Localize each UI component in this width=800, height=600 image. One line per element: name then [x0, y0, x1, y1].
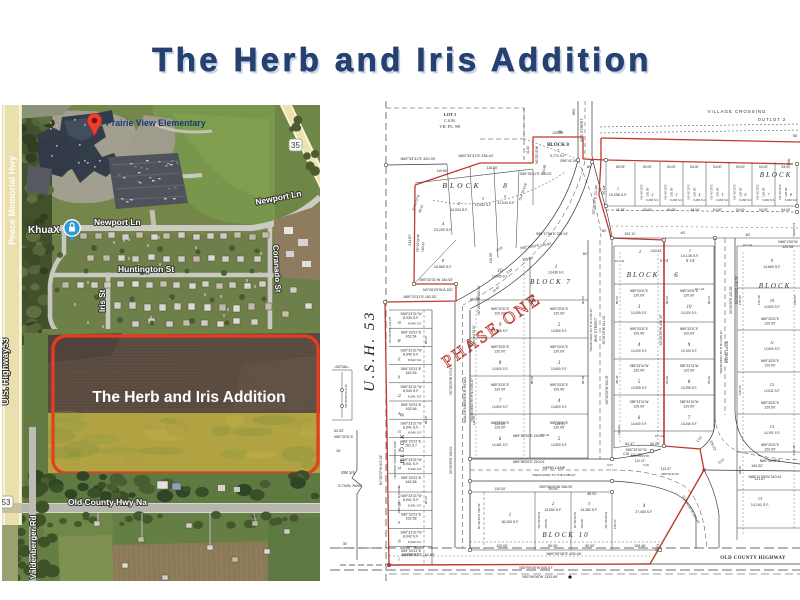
svg-text:35: 35: [291, 141, 300, 150]
svg-text:BLOCK: BLOCK: [399, 433, 406, 464]
svg-text:8,940 S.F.: 8,940 S.F.: [408, 322, 422, 326]
svg-text:10: 10: [687, 305, 693, 310]
svg-text:12,600 S.F.: 12,600 S.F.: [764, 347, 780, 351]
svg-text:8: 8: [398, 521, 400, 525]
svg-text:162.58: 162.58: [406, 516, 417, 520]
svg-text:14: 14: [397, 467, 401, 471]
svg-text:6: 6: [674, 271, 678, 279]
svg-text:11: 11: [770, 340, 774, 345]
svg-text:U.S.H. 53: U.S.H. 53: [362, 310, 378, 392]
svg-text:121.67': 121.67': [754, 477, 766, 481]
svg-text:10,945 S.F.: 10,945 S.F.: [492, 275, 508, 279]
svg-text:N89°33'31"E: N89°33'31"E: [491, 345, 509, 349]
svg-text:10' U.E.: 10' U.E.: [743, 243, 753, 247]
svg-text:150.58: 150.58: [580, 519, 584, 529]
svg-text:-58.92'-: -58.92'-: [586, 492, 597, 496]
svg-text:8,942 S.F.: 8,942 S.F.: [403, 535, 419, 539]
svg-text:10: 10: [397, 321, 401, 325]
svg-text:2: 2: [652, 193, 654, 197]
svg-text:85.49': 85.49': [581, 375, 585, 384]
svg-text:N89°33'31"E: N89°33'31"E: [761, 443, 779, 447]
svg-text:50.00': 50.00': [650, 442, 660, 446]
svg-text:N89°33'31"E: N89°33'31"E: [630, 289, 648, 293]
svg-text:89.09': 89.09': [616, 165, 625, 169]
svg-text:162.56: 162.56: [406, 407, 417, 411]
svg-text:42.32': 42.32': [616, 208, 625, 212]
svg-text:6,460 S.F.: 6,460 S.F.: [716, 198, 729, 202]
svg-text:4: 4: [699, 193, 701, 197]
svg-text:194.32': 194.32': [751, 464, 763, 468]
svg-text:N1°42'10"E: N1°42'10"E: [710, 184, 714, 199]
svg-text:90.00': 90.00': [548, 544, 558, 548]
svg-text:S 1/4: S 1/4: [660, 258, 668, 263]
svg-text:C15: C15: [623, 452, 629, 456]
svg-text:54.00': 54.00': [759, 165, 768, 169]
svg-text:16,569 S.F.: 16,569 S.F.: [434, 265, 452, 269]
svg-text:C17: C17: [607, 463, 613, 467]
svg-text:50°26'29"E 150.51': 50°26'29"E 150.51': [477, 502, 481, 529]
svg-text:N88°1'50"W: N88°1'50"W: [778, 240, 798, 244]
svg-text:S0°26'29"E 131.08: S0°26'29"E 131.08: [388, 317, 392, 343]
svg-text:14,669 S.F.: 14,669 S.F.: [763, 265, 781, 269]
svg-text:-DETAIL-: -DETAIL-: [334, 365, 350, 369]
svg-text:13,004 S.F.: 13,004 S.F.: [450, 208, 468, 212]
svg-text:S89°33'31"W: S89°33'31"W: [680, 364, 699, 368]
svg-text:90.00': 90.00': [424, 495, 428, 504]
svg-text:13,043 S.F.: 13,043 S.F.: [474, 203, 492, 207]
svg-text:104.50': 104.50': [489, 252, 493, 263]
svg-text:14,191 S.F.: 14,191 S.F.: [751, 503, 769, 507]
svg-text:S88°17'50"E 222.19': S88°17'50"E 222.19': [536, 232, 568, 236]
svg-text:10,256 S.F.: 10,256 S.F.: [609, 193, 627, 197]
svg-text:54.00': 54.00': [667, 208, 676, 212]
svg-text:60': 60': [746, 233, 751, 237]
svg-text:VILLAGE CROSSING: VILLAGE CROSSING: [708, 109, 767, 114]
svg-text:N89°58'00"E 240.01': N89°58'00"E 240.01': [513, 434, 546, 438]
svg-text:S89°33'31"W 154.53': S89°33'31"W 154.53': [419, 278, 453, 282]
svg-text:S89°33'31"W: S89°33'31"W: [661, 472, 679, 476]
svg-text:"DEDICAT: "DEDICAT: [792, 223, 796, 238]
svg-text:-54.00': -54.00': [690, 208, 700, 212]
svg-text:N89°33'31"E 238.44': N89°33'31"E 238.44': [459, 154, 494, 158]
svg-text:12: 12: [397, 394, 401, 398]
svg-text:120.00': 120.00': [494, 388, 506, 392]
svg-text:50.00': 50.00': [643, 165, 652, 169]
svg-text:120.00': 120.00': [716, 187, 720, 197]
svg-text:120.00': 120.00': [784, 187, 788, 197]
svg-text:N1°42'10"E: N1°42'10"E: [756, 184, 760, 199]
svg-text:5: 5: [722, 193, 724, 197]
svg-text:162.58: 162.58: [406, 480, 417, 484]
svg-text:23,200 S.F.: 23,200 S.F.: [434, 228, 452, 232]
svg-text:133.40': 133.40': [617, 425, 621, 435]
svg-text:N1°42'10"E: N1°42'10"E: [640, 184, 644, 199]
svg-text:150.55: 150.55: [544, 519, 548, 529]
svg-text:105.46': 105.46': [634, 544, 646, 548]
svg-text:60': 60': [602, 229, 607, 233]
svg-text:60': 60': [681, 231, 686, 235]
svg-text:10,800 S.F.: 10,800 S.F.: [492, 405, 508, 409]
svg-text:85.00': 85.00': [424, 335, 428, 344]
svg-text:OLD COUNTY HIGHWAY: OLD COUNTY HIGHWAY: [720, 556, 786, 561]
svg-text:Huntington St: Huntington St: [118, 264, 174, 274]
svg-text:N89°33'31"E: N89°33'31"E: [680, 327, 698, 331]
svg-text:214.87': 214.87': [408, 234, 413, 246]
svg-text:120.00': 120.00': [762, 187, 766, 197]
svg-text:6: 6: [745, 193, 747, 197]
svg-text:41.82: 41.82: [526, 146, 530, 154]
svg-text:N89°33'31"E: N89°33'31"E: [491, 307, 509, 311]
svg-text:Valdenberger Rd: Valdenberger Rd: [29, 515, 38, 579]
svg-text:8,939 S.F.: 8,939 S.F.: [403, 316, 419, 320]
svg-text:50.00': 50.00': [643, 208, 652, 212]
svg-text:85.00': 85.00': [424, 415, 428, 424]
svg-text:124.49': 124.49': [757, 295, 761, 305]
svg-text:10,800 S.F.: 10,800 S.F.: [551, 367, 567, 371]
svg-text:Peace Memorial Hwy: Peace Memorial Hwy: [7, 156, 17, 245]
svg-text:16: 16: [397, 539, 401, 543]
svg-text:120.00': 120.00': [683, 294, 695, 298]
svg-text:8,940 S.F.: 8,940 S.F.: [403, 389, 419, 393]
svg-text:120.00': 120.00': [670, 187, 674, 197]
svg-text:N89°33'31"E 162.53': N89°33'31"E 162.53': [403, 295, 436, 299]
svg-text:N89°57'52"E 162.63': N89°57'52"E 162.63': [401, 553, 434, 557]
svg-text:6,460 S.F.: 6,460 S.F.: [670, 198, 683, 202]
svg-text:BLOCK: BLOCK: [759, 282, 792, 290]
svg-text:12,043 S.F.: 12,043 S.F.: [497, 201, 515, 205]
svg-text:S89°33'31"W: S89°33'31"W: [680, 400, 699, 404]
svg-text:N1°42'10"E: N1°42'10"E: [733, 184, 737, 199]
svg-text:54.00': 54.00': [667, 165, 676, 169]
svg-text:C.S.M.: C.S.M.: [444, 118, 455, 123]
svg-text:9,774 S.F.: 9,774 S.F.: [550, 154, 566, 158]
svg-text:120.00': 120.00': [494, 487, 506, 491]
svg-text:105.00': 105.00': [738, 295, 742, 305]
svg-text:BLOCK: BLOCK: [760, 171, 793, 179]
svg-text:HERB LANE: HERB LANE: [724, 340, 729, 363]
svg-text:60': 60': [583, 252, 588, 256]
svg-text:N89°33'31"E 320.39': N89°33'31"E 320.39': [401, 157, 436, 161]
svg-text:N0°25'57"W 607.26': N0°25'57"W 607.26': [379, 455, 383, 486]
svg-text:N89°33'31"E: N89°33'31"E: [761, 317, 779, 321]
svg-text:SW 1/4: SW 1/4: [341, 470, 355, 475]
svg-text:BLOCK 10: BLOCK 10: [542, 531, 589, 539]
svg-text:8: 8: [790, 193, 792, 197]
svg-text:10,945 S.F.: 10,945 S.F.: [492, 329, 508, 333]
svg-text:LOT 1: LOT 1: [444, 112, 457, 117]
svg-text:120.00': 120.00': [494, 350, 506, 354]
svg-text:10,259 S.F.: 10,259 S.F.: [631, 386, 647, 390]
svg-text:54.00': 54.00': [713, 208, 722, 212]
svg-text:N0°25'15"W: N0°25'15"W: [535, 145, 539, 164]
svg-text:8,941 S.F.: 8,941 S.F.: [408, 504, 422, 508]
svg-text:8: 8: [503, 181, 507, 190]
svg-text:120.00': 120.00': [553, 312, 565, 316]
svg-text:8,940 S.F.: 8,940 S.F.: [408, 540, 422, 544]
svg-text:S89°59'08"W 1320.89': S89°59'08"W 1320.89': [522, 575, 558, 579]
svg-text:160.62: 160.62: [421, 242, 426, 252]
svg-text:U.S. Highway53: U.S. Highway53: [2, 338, 10, 405]
svg-text:6,460 S.F.: 6,460 S.F.: [739, 198, 752, 202]
svg-text:85.00': 85.00': [530, 375, 534, 384]
svg-text:N89°33'31"E: N89°33'31"E: [550, 383, 568, 387]
svg-text:OUTLOT 2: OUTLOT 2: [758, 117, 786, 122]
svg-text:120.00': 120.00': [764, 448, 776, 452]
svg-text:1: 1: [398, 558, 400, 562]
svg-text:54.00': 54.00': [736, 208, 745, 212]
svg-text:HERB LANE: HERB LANE: [543, 465, 566, 470]
svg-text:85.00': 85.00': [615, 295, 619, 304]
svg-text:8,941 S.F.: 8,941 S.F.: [403, 425, 419, 429]
svg-text:85.49: 85.49: [707, 376, 711, 384]
svg-text:10,800 S.F.: 10,800 S.F.: [492, 367, 508, 371]
svg-text:6,460 S.F.: 6,460 S.F.: [646, 198, 659, 202]
svg-text:13,438 S.F.: 13,438 S.F.: [548, 271, 564, 275]
svg-text:3: 3: [676, 193, 678, 197]
svg-text:120.00': 120.00': [633, 332, 645, 336]
svg-text:90.00': 90.00': [581, 295, 585, 304]
svg-text:BLOCK 7: BLOCK 7: [530, 278, 572, 286]
svg-text:150.58: 150.58: [472, 335, 476, 345]
svg-text:120.00': 120.00': [494, 422, 506, 426]
svg-text:N89°33'31"E: N89°33'31"E: [760, 459, 781, 463]
svg-text:14,481 S.F.: 14,481 S.F.: [492, 443, 508, 447]
svg-text:120.00': 120.00': [764, 364, 776, 368]
svg-text:120.00': 120.00': [496, 544, 508, 548]
svg-text:14,640 S.F.: 14,640 S.F.: [631, 422, 647, 426]
svg-text:120.00': 120.00': [646, 187, 650, 197]
svg-text:Prairie View Elementary: Prairie View Elementary: [106, 118, 206, 128]
svg-text:14,136 S.F.: 14,136 S.F.: [681, 254, 699, 258]
svg-text:S89°33'31"E 120.02': S89°33'31"E 120.02': [520, 172, 552, 176]
svg-text:8,940 S.F.: 8,940 S.F.: [408, 431, 422, 435]
svg-text:10,800 S.F.: 10,800 S.F.: [551, 405, 567, 409]
svg-text:62.47': 62.47': [625, 442, 635, 446]
svg-text:S-TWN. R#W: S-TWN. R#W: [338, 484, 361, 488]
svg-text:120.01': 120.01': [554, 422, 566, 426]
svg-text:120.00': 120.00': [494, 312, 506, 316]
svg-text:HIGHWAY SETBACK LINE: HIGHWAY SETBACK LINE: [393, 441, 397, 478]
svg-text:1: 1: [689, 248, 691, 253]
svg-text:54.00': 54.00': [713, 165, 722, 169]
svg-text:10: 10: [498, 269, 504, 274]
svg-text:N0°28'29"W 8.15C: N0°28'29"W 8.15C: [423, 288, 453, 292]
svg-text:8,941 S.F.: 8,941 S.F.: [408, 394, 422, 398]
svg-text:N89°33'31"E: N89°33'31"E: [550, 307, 568, 311]
svg-text:162.55: 162.55: [406, 371, 417, 375]
svg-text:N89°33'31"E: N89°33'31"E: [630, 327, 648, 331]
svg-text:IRIS: IRIS: [572, 108, 576, 115]
svg-text:N1°42'10"E: N1°42'10"E: [664, 184, 668, 199]
svg-text:90.00': 90.00': [585, 544, 595, 548]
svg-text:120.00': 120.00': [553, 426, 565, 430]
svg-text:10,200 S.F.: 10,200 S.F.: [681, 311, 697, 315]
svg-text:105.00': 105.00': [793, 295, 797, 305]
svg-text:154.37': 154.37': [613, 519, 617, 529]
svg-text:6,460 S.F.: 6,460 S.F.: [762, 198, 775, 202]
svg-text:50°26'29"W: 50°26'29"W: [573, 512, 577, 528]
svg-text:Newport Ln: Newport Ln: [94, 217, 141, 227]
svg-text:6,460 S.F.: 6,460 S.F.: [785, 198, 798, 202]
svg-text:50°26'29"E 150.51': 50°26'29"E 150.51': [449, 446, 453, 474]
svg-text:S89°33'31"W: S89°33'31"W: [630, 364, 649, 368]
svg-text:1: 1: [617, 186, 619, 191]
svg-text:120.00': 120.00': [764, 322, 776, 326]
svg-text:Old County Hwy Na: Old County Hwy Na: [68, 497, 147, 507]
svg-text:120.00': 120.00': [764, 406, 776, 410]
svg-text:13,346 S.F.: 13,346 S.F.: [681, 422, 697, 426]
svg-text:8,942 S.F.: 8,942 S.F.: [408, 467, 422, 471]
svg-text:WALDENBERGER ROAD: WALDENBERGER ROAD: [462, 377, 467, 424]
svg-text:54.00': 54.00': [782, 165, 791, 169]
svg-text:V.H. PG. 991: V.H. PG. 991: [439, 124, 460, 129]
svg-text:18': 18': [336, 449, 341, 453]
svg-text:8,941 S.F.: 8,941 S.F.: [403, 498, 419, 502]
svg-text:-102.11': -102.11': [650, 249, 663, 253]
svg-text:10,259 S.F.: 10,259 S.F.: [681, 386, 697, 390]
svg-text:BLOCK: BLOCK: [627, 271, 660, 279]
svg-text:N: N: [397, 376, 401, 380]
svg-text:162.5.7: 162.5.7: [405, 444, 417, 448]
svg-text:S89°33'31"W: S89°33'31"W: [631, 454, 649, 458]
svg-text:178.51': 178.51': [472, 324, 476, 335]
svg-text:10' U.E.: 10' U.E.: [470, 297, 480, 301]
svg-text:10' U.E.: 10' U.E.: [695, 287, 705, 291]
svg-text:14,191 S.F.: 14,191 S.F.: [764, 431, 780, 435]
svg-text:120.00': 120.00': [683, 369, 695, 373]
svg-text:54.00': 54.00': [759, 208, 768, 212]
svg-text:S89°59'08"W 606.67': S89°59'08"W 606.67': [519, 566, 553, 570]
svg-text:N 1/4: N 1/4: [685, 258, 695, 263]
svg-text:85.00': 85.00': [707, 295, 711, 304]
svg-text:13,550 S.F.: 13,550 S.F.: [544, 508, 561, 512]
svg-text:N0°26'29"W 373.57': N0°26'29"W 373.57': [449, 365, 453, 395]
svg-text:10,200 S.F.: 10,200 S.F.: [631, 349, 647, 353]
svg-text:N89°33'31"E: N89°33'31"E: [761, 359, 779, 363]
svg-text:120.00': 120.00': [553, 388, 565, 392]
svg-text:120.00': 120.00': [693, 187, 697, 197]
svg-text:DOC. NO. 1197442: DOC. NO. 1197442: [397, 486, 401, 513]
svg-text:85.00': 85.00': [665, 295, 669, 304]
svg-text:120.00': 120.00': [633, 405, 645, 409]
svg-text:11: 11: [397, 357, 401, 361]
svg-text:113.47': 113.47': [661, 467, 672, 471]
svg-text:120.00': 120.00': [683, 405, 695, 409]
svg-text:150.51': 150.51': [472, 415, 476, 425]
svg-text:N0°26'29"W: N0°26'29"W: [604, 512, 608, 529]
svg-text:S89°33'31"W: S89°33'31"W: [630, 400, 649, 404]
svg-text:N89°33'31"E: N89°33'31"E: [334, 435, 354, 439]
svg-text:27,465 S.F.: 27,465 S.F.: [635, 510, 652, 514]
svg-text:N1°42'10"E: N1°42'10"E: [687, 184, 691, 199]
svg-text:N1°42'10"E: N1°42'10"E: [778, 184, 782, 199]
svg-text:112.47': 112.47': [635, 459, 646, 463]
svg-text:54.00': 54.00': [690, 165, 699, 169]
svg-text:S8: S8: [793, 134, 797, 138]
svg-text:Iris St: Iris St: [98, 289, 107, 312]
svg-text:12,600 S.F.: 12,600 S.F.: [764, 305, 780, 309]
svg-text:120.00': 120.00': [494, 426, 506, 430]
svg-text:N89°33'31"E: N89°33'31"E: [761, 401, 779, 405]
svg-text:52.53': 52.53': [334, 429, 344, 433]
svg-text:12,611 S.F.: 12,611 S.F.: [764, 389, 780, 393]
svg-text:54.00': 54.00': [736, 165, 745, 169]
svg-text:N0°28'29"W 385.76: N0°28'29"W 385.76: [605, 375, 609, 404]
svg-text:14,553 S.F.: 14,553 S.F.: [551, 443, 567, 447]
svg-text:6,460 S.F.: 6,460 S.F.: [693, 198, 706, 202]
svg-text:53: 53: [2, 498, 11, 507]
svg-text:13,382 S.F.: 13,382 S.F.: [580, 508, 597, 512]
svg-text:-85.49: -85.49: [615, 375, 619, 384]
svg-text:The Herb and Iris Addition: The Herb and Iris Addition: [92, 389, 285, 406]
svg-text:50°28'29"E 421.00': 50°28'29"E 421.00': [729, 286, 733, 314]
svg-text:105.00': 105.00': [738, 385, 742, 395]
svg-text:85.49: 85.49: [665, 376, 669, 384]
svg-text:1: 1: [555, 265, 558, 270]
svg-text:10' U.E.: 10' U.E.: [655, 434, 665, 438]
svg-text:10,259 S.F.: 10,259 S.F.: [631, 311, 647, 315]
svg-text:85.00': 85.00': [530, 295, 534, 304]
svg-text:-90.00': -90.00': [548, 487, 559, 491]
svg-text:N89°58'00"E 240.01': N89°58'00"E 240.01': [513, 460, 546, 464]
svg-text:18,163 S.F.: 18,163 S.F.: [501, 520, 519, 524]
svg-text:S0°26'29"W 495.49': S0°26'29"W 495.49': [659, 314, 663, 345]
svg-text:8,942 S.F.: 8,942 S.F.: [408, 358, 422, 362]
svg-text:C16: C16: [643, 463, 649, 467]
svg-text:102.11': 102.11': [624, 232, 636, 236]
svg-text:120.06': 120.06': [552, 131, 564, 135]
svg-text:120.00': 120.00': [633, 294, 645, 298]
svg-text:"DEDICATED TO THE PUBLIC": "DEDICATED TO THE PUBLIC": [589, 308, 593, 352]
svg-text:N0°26'29"W: N0°26'29"W: [537, 512, 541, 529]
svg-text:162.54: 162.54: [406, 334, 417, 338]
svg-text:10' U.E.: 10' U.E.: [407, 545, 418, 549]
svg-text:120.08': 120.08': [782, 245, 794, 249]
svg-text:N89°33'31"E: N89°33'31"E: [491, 383, 509, 387]
svg-text:120.00': 120.00': [683, 332, 695, 336]
svg-text:84.26': 84.26': [738, 465, 742, 474]
svg-text:IRIS STREET: IRIS STREET: [593, 317, 598, 342]
svg-text:1: 1: [509, 513, 511, 518]
svg-text:118.84': 118.84': [486, 166, 497, 170]
svg-text:54.00': 54.00': [782, 208, 791, 212]
svg-text:120.00': 120.00': [633, 369, 645, 373]
svg-text:KhuaX: KhuaX: [28, 225, 60, 236]
svg-text:120.00': 120.00': [553, 350, 565, 354]
svg-text:10,100 S.F.: 10,100 S.F.: [681, 349, 697, 353]
svg-text:120.00': 120.00': [739, 187, 743, 197]
svg-text:N89°33'31"E: N89°33'31"E: [550, 345, 568, 349]
svg-text:"DEDICATED TO THE PUBLIC": "DEDICATED TO THE PUBLIC": [532, 473, 576, 477]
svg-text:8,940 S.F.: 8,940 S.F.: [403, 353, 419, 357]
svg-text:N89°59'08"E 405.46': N89°59'08"E 405.46': [547, 552, 582, 556]
svg-text:"DEDICATED TO THE PUBLIC": "DEDICATED TO THE PUBLIC": [719, 330, 723, 374]
svg-text:50°28'29"W 511.18': 50°28'29"W 511.18': [602, 315, 606, 344]
svg-text:N0°26'29"W 8.10: N0°26'29"W 8.10: [344, 384, 348, 408]
svg-text:13,550 S.F.: 13,550 S.F.: [551, 329, 567, 333]
svg-text:119.60': 119.60': [436, 169, 447, 173]
svg-text:30': 30': [343, 542, 348, 546]
